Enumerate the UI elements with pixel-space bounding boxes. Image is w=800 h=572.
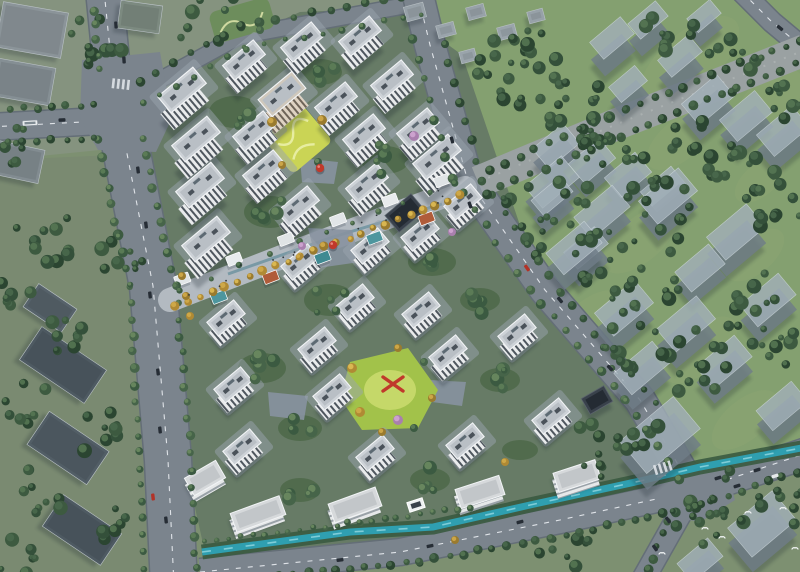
tree-crown: [486, 166, 491, 171]
tree-crown: [549, 546, 554, 551]
tree-crown: [677, 371, 681, 375]
tree-crown: [291, 15, 295, 19]
tree-crown: [640, 20, 648, 28]
plaza: [268, 392, 308, 420]
tree-crown: [740, 49, 744, 53]
tree-crown: [237, 22, 242, 27]
tree-crown: [377, 170, 383, 176]
tree-crown: [743, 195, 748, 200]
tree-crown: [30, 243, 37, 250]
tree-crown: [141, 566, 145, 570]
tree-crown: [74, 334, 79, 339]
tree-crown: [685, 378, 690, 383]
tree-crown: [642, 197, 648, 203]
tree-crown: [561, 189, 567, 195]
tree-crown: [600, 161, 604, 165]
tree-crown: [659, 509, 664, 514]
tree-crown: [779, 335, 782, 338]
tree-crown: [777, 67, 782, 72]
tree-crown: [258, 212, 265, 219]
tree-crown: [587, 419, 594, 426]
tree-crown: [252, 208, 259, 215]
tree-crown: [590, 527, 594, 531]
tree-crown: [30, 411, 35, 416]
tree-crown: [29, 484, 33, 488]
tree-crown: [582, 463, 586, 467]
tree-crown: [101, 435, 108, 442]
tree-crown: [235, 122, 239, 126]
tree-crown: [188, 485, 192, 489]
tree-crown: [551, 218, 556, 223]
tree-crown: [135, 417, 139, 421]
tree-crown: [128, 282, 131, 285]
tree-crown: [387, 561, 392, 566]
tree-crown: [132, 261, 136, 265]
tree-crown: [518, 154, 523, 159]
tree-crown: [622, 106, 626, 110]
pedestrian: [437, 190, 439, 192]
tree-crown: [593, 81, 600, 88]
tree-crown: [750, 152, 758, 160]
tree-crown: [638, 265, 643, 270]
tree-crown: [520, 540, 525, 545]
tree-crown: [652, 420, 660, 428]
tree-crown: [35, 106, 39, 110]
tree-crown: [323, 526, 326, 529]
tree-crown: [357, 520, 360, 523]
tree-crown: [731, 150, 737, 156]
tree-crown: [96, 15, 102, 21]
aerial-site-render: [0, 0, 800, 572]
tree-crown: [694, 78, 698, 82]
tree-crown: [789, 193, 795, 199]
tree-crown: [358, 231, 362, 235]
tree-crown: [686, 505, 690, 509]
tree-crown: [376, 563, 379, 566]
tree-crown: [404, 559, 407, 562]
tree-crown: [302, 35, 306, 39]
tree-crown: [462, 118, 466, 122]
tree-crown: [673, 233, 680, 240]
tree-crown: [608, 257, 611, 260]
tree-crown: [296, 254, 300, 258]
tree-crown: [214, 538, 217, 541]
tree-crown: [497, 183, 502, 188]
tree-crown: [794, 469, 799, 474]
tree-crown: [119, 248, 124, 253]
tree-crown: [512, 225, 515, 228]
tree-crown: [599, 474, 603, 478]
tree-crown: [139, 258, 143, 262]
tree-crown: [563, 327, 567, 331]
tree-crown: [65, 138, 68, 141]
tree-crown: [643, 426, 648, 431]
tree-crown: [594, 431, 601, 438]
tree-crown: [591, 119, 596, 124]
tree-crown: [706, 50, 711, 55]
tree-crown: [737, 58, 742, 63]
tree-crown: [536, 95, 542, 101]
tree-crown: [136, 448, 140, 452]
tree-crown: [780, 113, 787, 120]
tree-crown: [505, 255, 510, 260]
tree-crown: [760, 343, 763, 346]
tree-crown: [313, 287, 319, 293]
tree-crown: [598, 367, 603, 372]
tree-crown: [452, 537, 456, 541]
tree-crown: [547, 535, 552, 540]
tree-crown: [656, 225, 663, 232]
tree-crown: [102, 425, 106, 429]
tree-crown: [92, 20, 97, 25]
tree-crown: [449, 229, 453, 233]
tree-crown: [62, 102, 66, 106]
tree-crown: [243, 109, 251, 117]
tree-crown: [12, 157, 18, 163]
tree-crown: [271, 16, 276, 21]
tree-crown: [751, 306, 758, 313]
tree-crown: [320, 242, 325, 247]
tree-crown: [752, 55, 756, 59]
tree-crown: [790, 519, 796, 525]
tree-crown: [343, 4, 348, 9]
tree-crown: [170, 59, 175, 64]
tree-crown: [538, 217, 542, 221]
tree-crown: [351, 221, 354, 224]
tree-crown: [283, 37, 286, 40]
tree-crown: [180, 365, 185, 370]
tree-crown: [546, 139, 550, 143]
tree-crown: [537, 300, 542, 305]
screenshot-root: [0, 0, 800, 572]
tree-crown: [550, 53, 558, 61]
tree-crown: [468, 136, 473, 141]
tree-crown: [714, 43, 720, 49]
tree-crown: [632, 442, 638, 448]
tree-crown: [32, 509, 37, 514]
tree-crown: [421, 359, 425, 363]
tree-crown: [132, 399, 136, 403]
tree-crown: [401, 16, 404, 19]
tree-crown: [759, 55, 763, 59]
tree-crown: [129, 347, 134, 352]
tree-crown: [661, 176, 669, 184]
tree-crown: [53, 331, 59, 337]
tree-crown: [725, 33, 733, 41]
tree-crown: [771, 341, 778, 348]
tree-crown: [289, 414, 296, 421]
tree-crown: [670, 509, 673, 512]
tree-crown: [187, 313, 191, 317]
tree-crown: [787, 100, 795, 108]
tree-crown: [698, 501, 702, 505]
tree-crown: [483, 190, 488, 195]
tree-crown: [262, 42, 265, 45]
tree-crown: [359, 23, 363, 27]
tree-crown: [236, 262, 240, 266]
tree-crown: [439, 135, 443, 139]
tree-crown: [110, 525, 117, 532]
tree-crown: [180, 349, 184, 353]
tree-crown: [32, 555, 36, 559]
tree-crown: [689, 101, 694, 106]
tree-crown: [610, 296, 613, 299]
tree-crown: [639, 439, 646, 446]
tree-crown: [14, 225, 18, 229]
tree-crown: [100, 169, 105, 174]
car: [122, 56, 126, 63]
tree-crown: [116, 233, 120, 237]
tree-crown: [653, 329, 657, 333]
tree-crown: [706, 510, 711, 515]
tree-crown: [123, 265, 127, 269]
tree-crown: [698, 361, 706, 369]
tree-crown: [642, 387, 645, 390]
tree-crown: [730, 49, 734, 53]
tree-crown: [491, 51, 497, 57]
tree-crown: [654, 400, 657, 403]
tree-crown: [19, 138, 23, 142]
tree-crown: [607, 114, 612, 119]
tree-crown: [139, 498, 143, 502]
tree-crown: [794, 492, 798, 496]
tree-crown: [62, 317, 66, 321]
pedestrian: [294, 251, 296, 253]
tree-crown: [639, 152, 646, 159]
tree-crown: [620, 308, 625, 313]
tree-crown: [91, 101, 95, 105]
tree-crown: [789, 328, 795, 334]
tree-crown: [573, 250, 577, 254]
tree-crown: [608, 323, 615, 330]
tree-crown: [112, 257, 119, 264]
tree-crown: [484, 71, 489, 76]
tree-crown: [588, 128, 592, 132]
tree-crown: [318, 116, 324, 122]
tree-crown: [69, 30, 73, 34]
tree-crown: [122, 514, 127, 519]
tree-crown: [747, 79, 752, 84]
tree-crown: [307, 426, 314, 433]
tree-crown: [580, 315, 584, 319]
tree-crown: [501, 196, 504, 199]
tree-crown: [13, 125, 18, 130]
tree-crown: [586, 274, 590, 278]
tree-crown: [597, 461, 602, 466]
tree-crown: [310, 247, 315, 252]
tree-crown: [139, 514, 143, 518]
tree-crown: [761, 270, 766, 275]
tree-crown: [779, 80, 786, 87]
tree-crown: [671, 123, 677, 129]
tree-crown: [775, 179, 782, 186]
tree-crown: [137, 78, 142, 83]
tree-crown: [76, 323, 83, 330]
tree-crown: [685, 496, 693, 504]
tree-crown: [430, 116, 435, 121]
tree-crown: [279, 162, 283, 166]
tree-crown: [557, 289, 561, 293]
tree-crown: [719, 91, 723, 95]
tree-crown: [624, 193, 629, 198]
tree-crown: [174, 84, 178, 88]
tree-crown: [590, 133, 595, 138]
car: [114, 21, 118, 28]
tree-crown: [16, 414, 22, 420]
tree-crown: [550, 72, 557, 79]
car: [151, 493, 155, 500]
pedestrian: [293, 254, 295, 256]
tree-crown: [299, 243, 303, 247]
tree-crown: [567, 221, 571, 225]
tree-crown: [691, 143, 698, 150]
tree-crown: [276, 531, 279, 534]
tree-crown: [286, 259, 289, 262]
tree-crown: [311, 525, 314, 528]
tree-crown: [47, 316, 55, 324]
tree-crown: [535, 548, 541, 554]
tree-crown: [160, 234, 165, 239]
tree-crown: [192, 75, 196, 79]
tree-crown: [130, 332, 135, 337]
tree-crown: [657, 348, 665, 356]
tree-crown: [76, 16, 81, 21]
tree-crown: [735, 322, 740, 327]
tree-crown: [690, 513, 694, 517]
tree-crown: [521, 60, 526, 65]
tree-crown: [603, 345, 607, 349]
tree-crown: [449, 174, 454, 179]
pedestrian: [188, 294, 190, 296]
tree-crown: [298, 528, 300, 530]
tree-crown: [704, 164, 711, 171]
tree-crown: [238, 116, 242, 120]
tree-crown: [394, 416, 400, 422]
tree-crown: [24, 466, 30, 472]
tree-crown: [649, 555, 654, 560]
tree-crown: [177, 288, 180, 291]
tree-crown: [131, 382, 136, 387]
tree-crown: [238, 534, 241, 537]
tree-crown: [575, 422, 582, 429]
tree-crown: [569, 302, 574, 307]
tree-crown: [406, 515, 409, 518]
tree-crown: [198, 294, 202, 298]
tree-crown: [660, 530, 664, 534]
tree-crown: [695, 518, 701, 524]
tree-crown: [190, 500, 194, 504]
tree-crown: [628, 182, 636, 190]
tree-crown: [770, 212, 776, 218]
tree-crown: [603, 139, 607, 143]
tree-crown: [285, 530, 288, 533]
tree-crown: [748, 339, 755, 346]
tree-crown: [418, 512, 421, 515]
tree-crown: [674, 109, 679, 114]
tree-crown: [774, 487, 779, 492]
tree-crown: [778, 473, 783, 478]
tree-crown: [700, 376, 706, 382]
tree-crown: [86, 58, 90, 62]
tree-crown: [328, 296, 332, 300]
tree-crown: [369, 519, 373, 523]
tree-crown: [535, 257, 540, 262]
tree-crown: [688, 20, 695, 27]
tree-crown: [91, 135, 94, 138]
tree-crown: [106, 407, 113, 414]
tree-crown: [769, 166, 777, 174]
tree-crown: [542, 165, 547, 170]
tree-crown: [140, 548, 144, 552]
tree-crown: [596, 451, 600, 455]
tree-crown: [618, 243, 624, 249]
tree-crown: [268, 118, 274, 124]
tree-crown: [442, 41, 446, 45]
tree-crown: [771, 295, 776, 300]
tree-crown: [175, 334, 180, 339]
tree-crown: [257, 27, 261, 31]
tree-crown: [556, 80, 561, 85]
tree-crown: [712, 171, 719, 178]
tree-crown: [584, 156, 588, 160]
tree-crown: [430, 554, 435, 559]
tree-crown: [632, 239, 635, 242]
tree-crown: [473, 159, 477, 163]
tree-crown: [178, 34, 182, 38]
tree-crown: [648, 178, 653, 183]
tree-crown: [272, 262, 276, 266]
tree-crown: [574, 198, 579, 203]
tree-crown: [761, 326, 765, 330]
tree-crown: [157, 218, 162, 223]
tree-crown: [128, 249, 132, 253]
tree-crown: [697, 116, 704, 123]
tree-crown: [666, 90, 670, 94]
tree-crown: [138, 482, 141, 485]
tree-crown: [721, 362, 728, 369]
tree-crown: [113, 506, 117, 510]
tree-crown: [663, 292, 671, 300]
tree-crown: [719, 507, 725, 513]
tree-crown: [633, 127, 637, 131]
tree-crown: [560, 133, 565, 138]
tree-crown: [258, 266, 263, 271]
tree-crown: [645, 122, 649, 126]
tree-crown: [107, 237, 113, 243]
tree-crown: [796, 102, 800, 106]
tree-crown: [586, 356, 591, 361]
tree-crown: [171, 302, 176, 307]
tree-crown: [680, 216, 684, 220]
tree-crown: [630, 156, 635, 161]
pedestrian: [272, 259, 274, 261]
tree-crown: [176, 318, 179, 321]
tree-crown: [248, 274, 252, 278]
tree-crown: [611, 345, 616, 350]
tree-crown: [289, 426, 293, 430]
tree-crown: [733, 84, 738, 89]
tree-crown: [382, 144, 387, 149]
tree-crown: [591, 331, 595, 335]
tree-crown: [348, 364, 354, 370]
tree-crown: [306, 491, 310, 495]
tree-crown: [83, 412, 89, 418]
tree-crown: [503, 211, 506, 214]
tree-crown: [628, 428, 635, 435]
tree-crown: [555, 101, 560, 106]
tree-crown: [619, 519, 623, 523]
tree-crown: [499, 384, 505, 390]
